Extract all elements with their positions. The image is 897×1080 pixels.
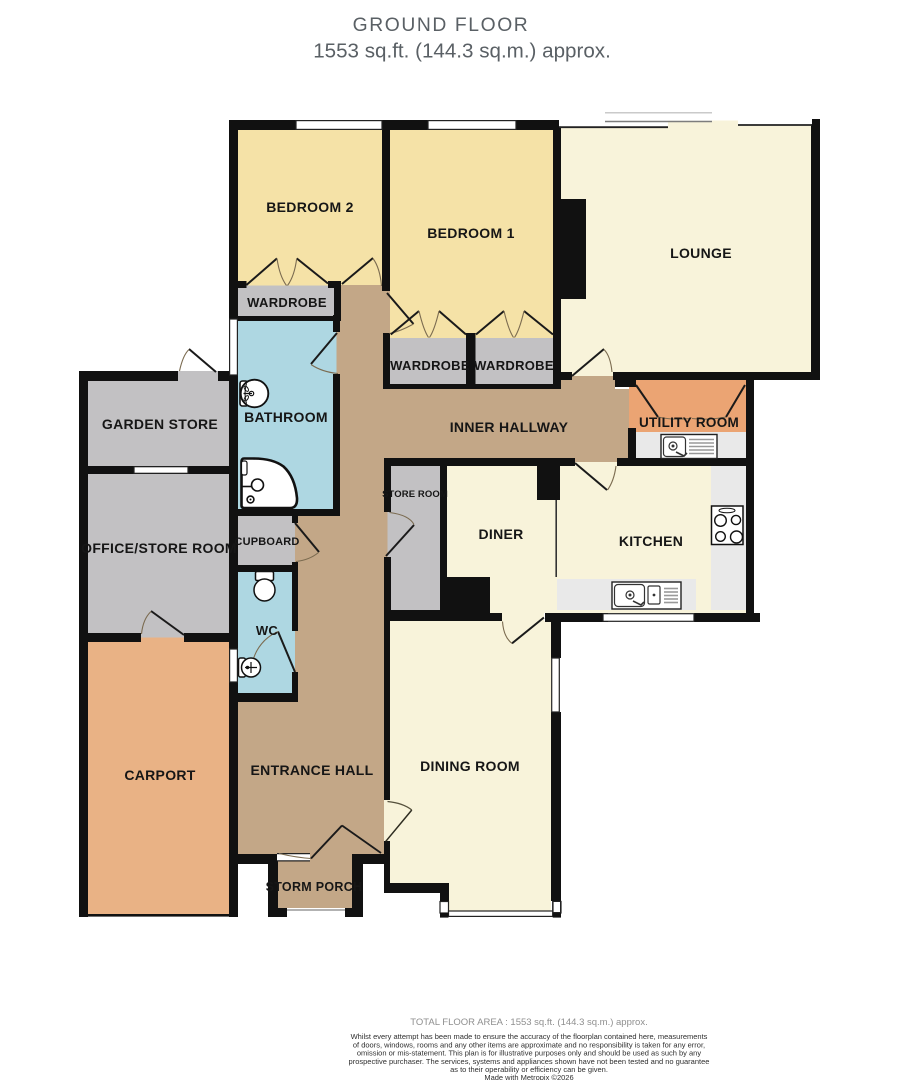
svg-text:Made with Metropix ©2026: Made with Metropix ©2026 — [484, 1073, 573, 1080]
svg-text:WARDROBE: WARDROBE — [247, 295, 327, 310]
svg-text:WC: WC — [256, 623, 279, 638]
svg-text:DINER: DINER — [478, 526, 523, 542]
svg-text:BEDROOM 2: BEDROOM 2 — [266, 199, 354, 215]
svg-text:DINING ROOM: DINING ROOM — [420, 758, 520, 774]
svg-text:WARDROBE: WARDROBE — [474, 358, 554, 373]
svg-text:CUPBOARD: CUPBOARD — [234, 536, 299, 548]
svg-text:KITCHEN: KITCHEN — [619, 533, 683, 549]
svg-text:OFFICE/STORE ROOM: OFFICE/STORE ROOM — [81, 540, 237, 556]
svg-text:INNER HALLWAY: INNER HALLWAY — [450, 419, 569, 435]
svg-text:STORM PORCH: STORM PORCH — [266, 880, 363, 894]
svg-text:ENTRANCE HALL: ENTRANCE HALL — [251, 762, 374, 778]
svg-text:STORE ROOM: STORE ROOM — [382, 489, 448, 500]
svg-text:UTILITY ROOM: UTILITY ROOM — [639, 415, 739, 430]
svg-text:GROUND FLOOR: GROUND FLOOR — [353, 15, 530, 36]
svg-text:TOTAL FLOOR AREA : 1553 sq.ft.: TOTAL FLOOR AREA : 1553 sq.ft. (144.3 sq… — [410, 1017, 647, 1028]
svg-text:GARDEN STORE: GARDEN STORE — [102, 416, 218, 432]
svg-text:BATHROOM: BATHROOM — [244, 409, 328, 425]
svg-text:CARPORT: CARPORT — [124, 767, 195, 783]
svg-text:WARDROBE: WARDROBE — [390, 358, 470, 373]
svg-text:LOUNGE: LOUNGE — [670, 245, 732, 261]
svg-text:1553 sq.ft. (144.3 sq.m.) appr: 1553 sq.ft. (144.3 sq.m.) approx. — [313, 40, 611, 63]
svg-text:BEDROOM 1: BEDROOM 1 — [427, 225, 515, 241]
